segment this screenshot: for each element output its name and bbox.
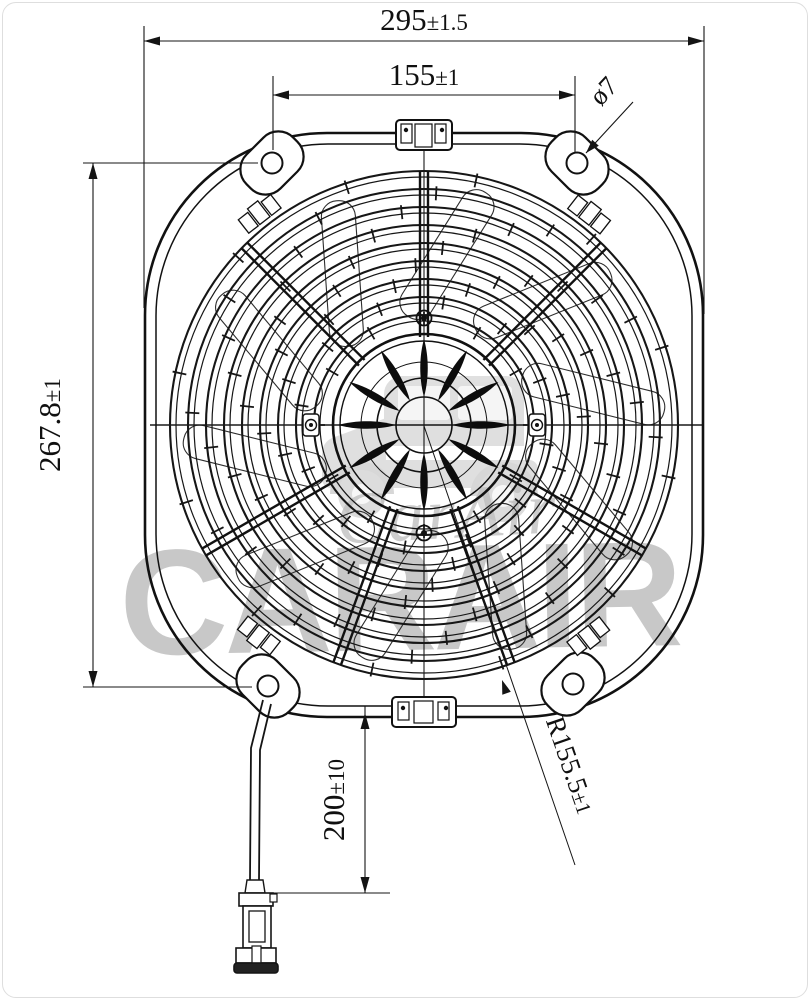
connector-plug (234, 893, 278, 973)
dim-hole-pitch-y-label: 267.8±1 (32, 378, 67, 472)
mount-hole-bottom-right (563, 674, 584, 695)
dim-fan-radius-label: R155.5±1 (540, 713, 601, 818)
dim-lead-length: 200±10 (272, 706, 390, 893)
fan-technical-drawing: CarAir CARAIR (0, 0, 810, 1000)
mount-hole-bottom-left (258, 676, 279, 697)
drawing-canvas: CarAir CARAIR (0, 0, 810, 1000)
dim-hole-pitch-x-label: 155±1 (389, 57, 460, 92)
dim-overall-width-label: 295±1.5 (380, 2, 468, 37)
lead-wire (245, 700, 271, 893)
mount-hole-top-left (262, 153, 283, 174)
dim-hole-dia: ø7 (583, 71, 633, 153)
dim-lead-length-label: 200±10 (316, 759, 351, 841)
dim-hole-dia-label: ø7 (583, 71, 623, 111)
mount-hole-top-right (567, 153, 588, 174)
